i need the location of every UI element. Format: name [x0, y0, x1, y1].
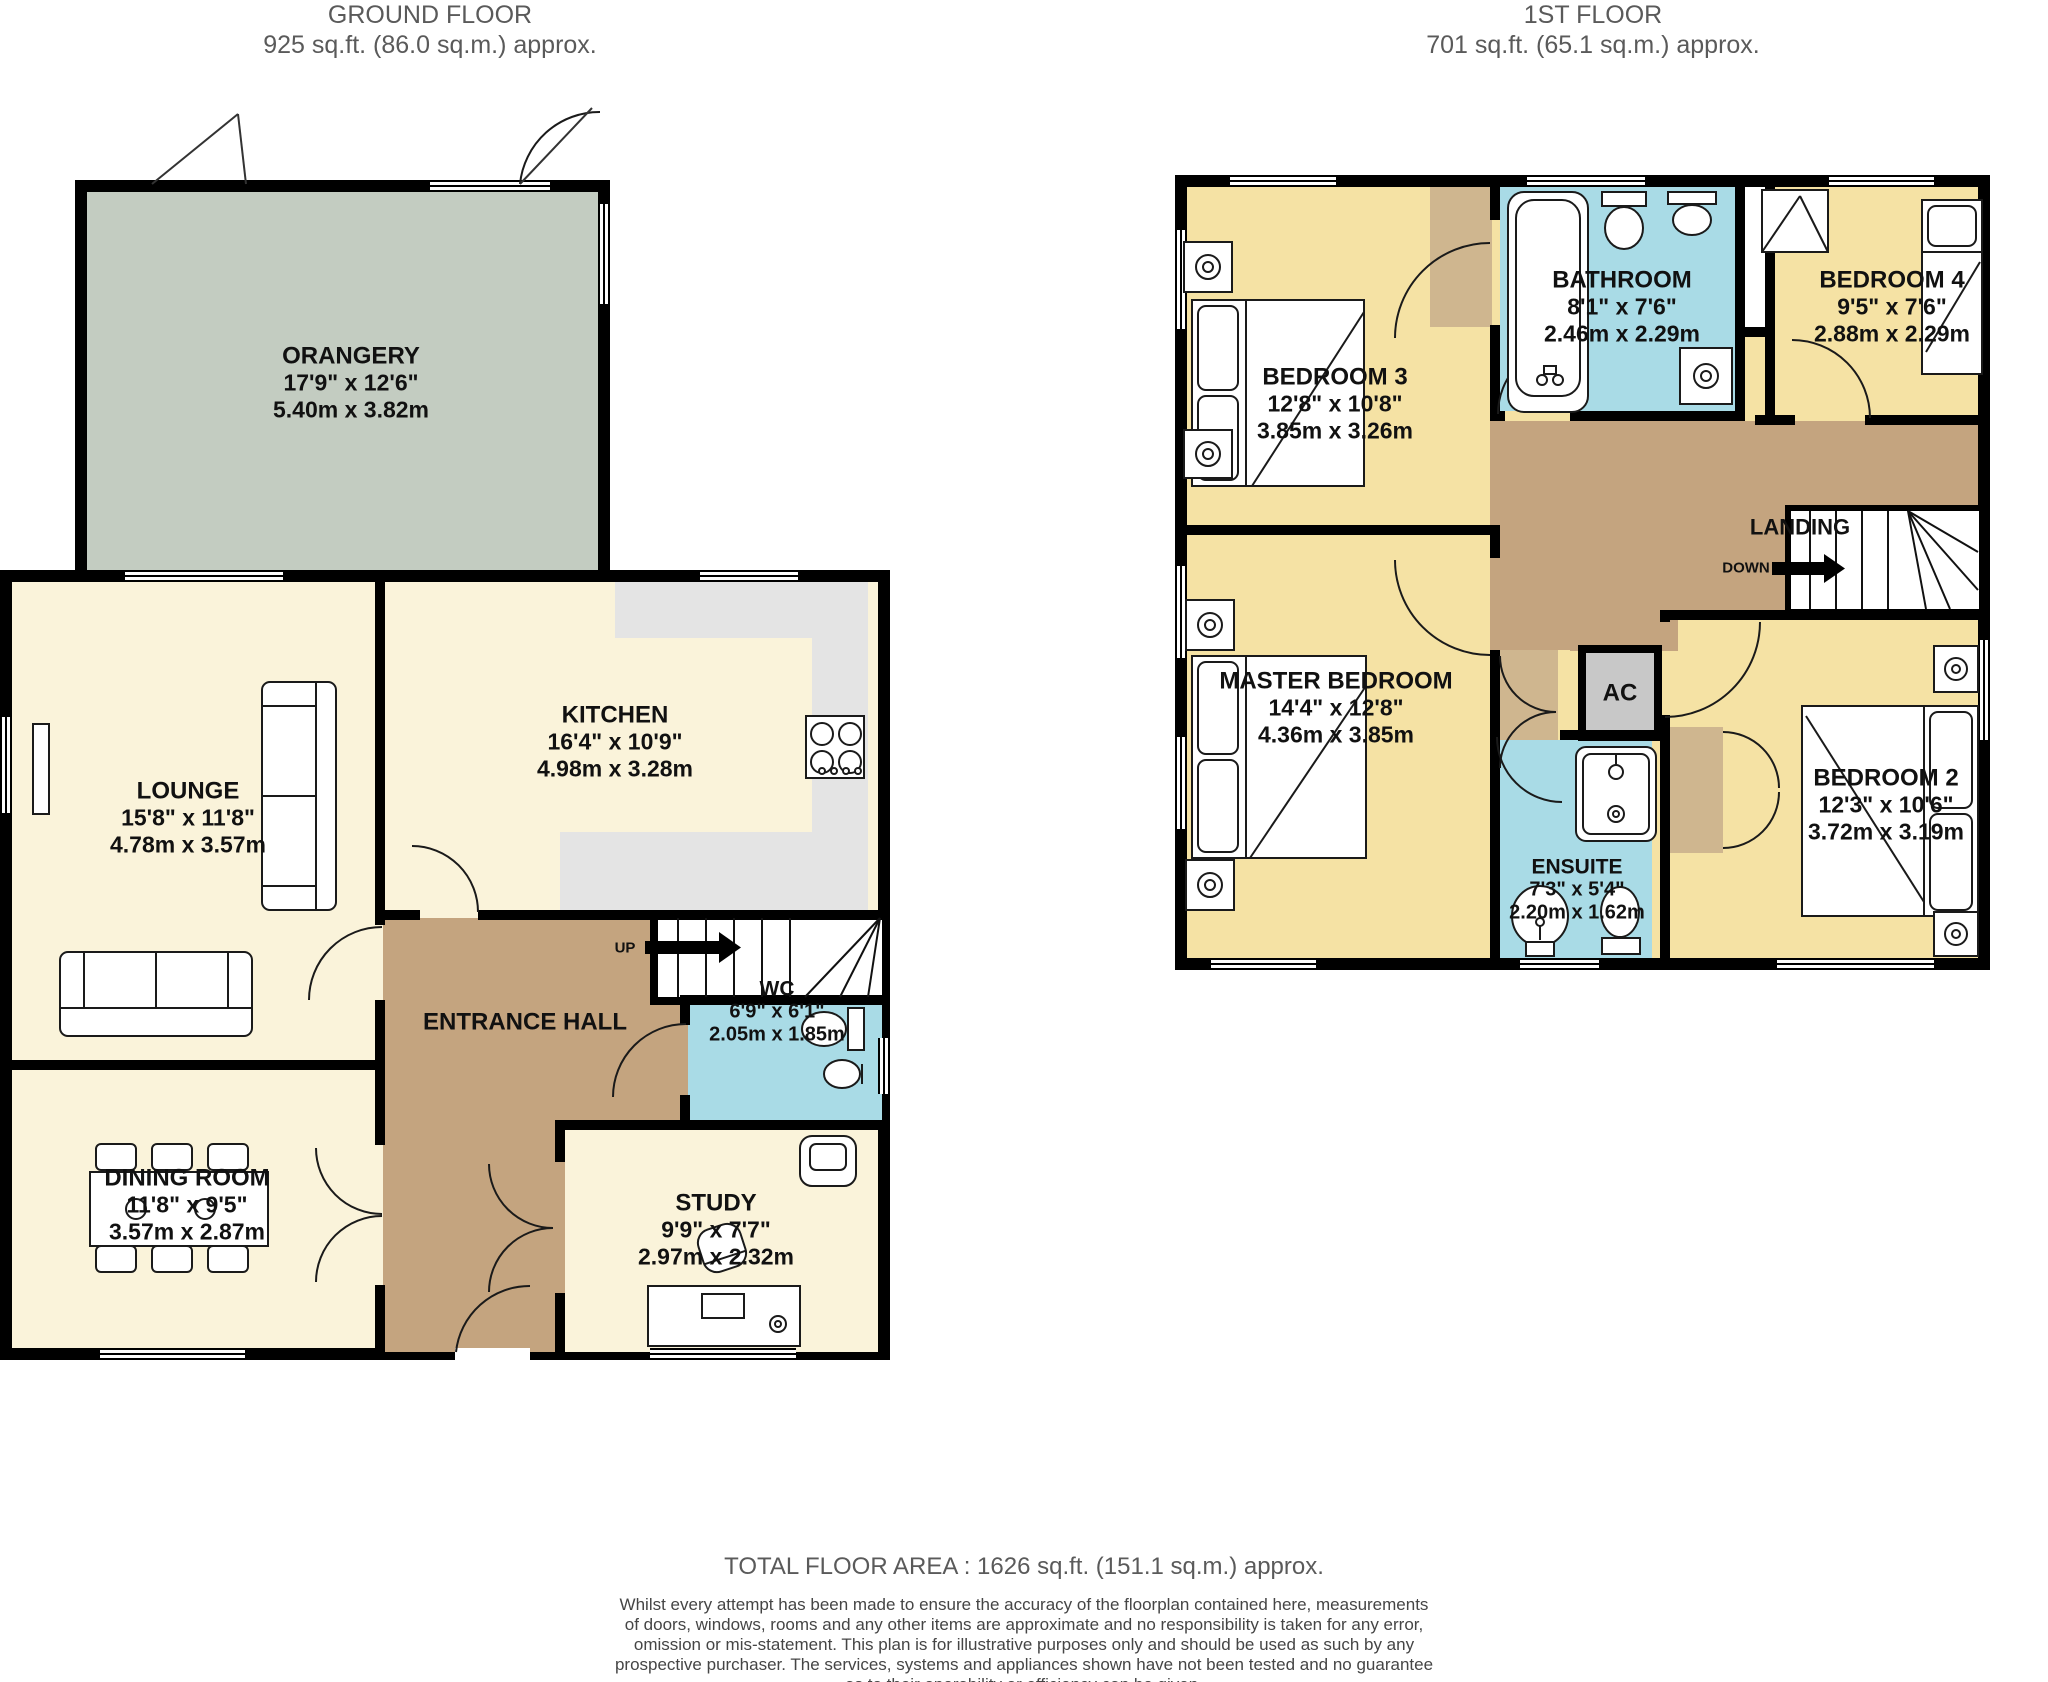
- wall: [1765, 175, 1775, 425]
- wall: [375, 1000, 385, 1145]
- room-label-lounge: LOUNGE 15'8" x 11'8" 4.78m x 3.57m: [110, 778, 266, 859]
- wall: [375, 1285, 385, 1360]
- window: [1175, 737, 1187, 829]
- wall: [1570, 411, 1745, 421]
- closet-bedroom2: [1668, 727, 1723, 853]
- wall: [1490, 175, 1500, 220]
- window: [1829, 175, 1934, 187]
- total-floor-area: TOTAL FLOOR AREA : 1626 sq.ft. (151.1 sq…: [614, 1553, 1434, 1581]
- wall: [0, 1060, 385, 1070]
- kitchen-counter-bottom: [560, 832, 812, 910]
- wall: [1735, 175, 1745, 421]
- room-label-landing: LANDING: [1750, 514, 1850, 541]
- window: [125, 570, 283, 582]
- room-label-kitchen: KITCHEN 16'4" x 10'9" 4.98m x 3.28m: [537, 702, 693, 783]
- window: [0, 717, 12, 813]
- wall: [1180, 525, 1500, 535]
- wall: [1660, 715, 1670, 970]
- window: [598, 204, 610, 304]
- room-ensuite: [1500, 740, 1652, 958]
- floorplan-canvas: GROUND FLOOR 925 sq.ft. (86.0 sq.m.) app…: [0, 0, 2048, 1682]
- cupboard: [1745, 187, 1765, 327]
- ground-floor-subtitle: 925 sq.ft. (86.0 sq.m.) approx.: [180, 30, 680, 60]
- stairs-up-label: UP: [615, 940, 636, 957]
- first-floor-subtitle: 701 sq.ft. (65.1 sq.m.) approx.: [1343, 30, 1843, 60]
- wall: [1490, 650, 1500, 970]
- room-label-bedroom3: BEDROOM 3 12'8" x 10'8" 3.85m x 3.26m: [1257, 364, 1413, 445]
- stairs-down-label: DOWN: [1722, 560, 1770, 577]
- window: [430, 180, 550, 192]
- window: [1527, 175, 1645, 187]
- ground-floor-title: GROUND FLOOR: [180, 0, 680, 30]
- window: [100, 1348, 245, 1360]
- room-label-master-bedroom: MASTER BEDROOM 14'4" x 12'8" 4.36m x 3.8…: [1219, 668, 1452, 749]
- room-label-bedroom4: BEDROOM 4 9'5" x 7'6" 2.88m x 2.29m: [1814, 267, 1970, 348]
- ground-floor-header: GROUND FLOOR 925 sq.ft. (86.0 sq.m.) app…: [180, 0, 680, 60]
- room-label-bathroom: BATHROOM 8'1" x 7'6" 2.46m x 2.29m: [1544, 267, 1700, 348]
- room-label-wc: WC 6'9" x 6'1" 2.05m x 1.85m: [709, 978, 845, 1047]
- wall: [375, 910, 420, 920]
- window: [1230, 175, 1336, 187]
- window: [1978, 640, 1990, 740]
- kitchen-counter-right: [812, 582, 868, 910]
- room-label-orangery: ORANGERY 17'9" x 12'6" 5.40m x 3.82m: [273, 343, 429, 424]
- footer: TOTAL FLOOR AREA : 1626 sq.ft. (151.1 sq…: [614, 1553, 1434, 1682]
- room-label-entrance-hall: ENTRANCE HALL: [423, 1009, 627, 1036]
- wall: [1490, 411, 1505, 421]
- window: [1520, 958, 1599, 970]
- window: [1175, 566, 1187, 658]
- first-floor-title: 1ST FLOOR: [1343, 0, 1843, 30]
- window: [878, 1038, 890, 1094]
- room-label-study: STUDY 9'9" x 7'7" 2.97m x 2.32m: [638, 1190, 794, 1271]
- window: [650, 1348, 796, 1360]
- room-label-ensuite: ENSUITE 7'3" x 5'4" 2.20m x 1.62m: [1509, 856, 1645, 925]
- disclaimer-text: Whilst every attempt has been made to en…: [614, 1595, 1434, 1682]
- wall: [555, 1120, 695, 1130]
- wall: [680, 1120, 890, 1130]
- room-label-bedroom2: BEDROOM 2 12'3" x 10'6" 3.72m x 3.19m: [1808, 765, 1964, 846]
- window: [1175, 230, 1187, 329]
- room-label-dining-room: DINING ROOM 11'8" x 9'5" 3.57m x 2.87m: [104, 1165, 269, 1246]
- window: [1777, 958, 1934, 970]
- wall: [1490, 325, 1500, 421]
- window: [700, 570, 798, 582]
- wall: [1490, 525, 1500, 558]
- wall: [1660, 610, 1670, 622]
- wall: [1865, 415, 1990, 425]
- wall: [375, 570, 385, 925]
- wall: [555, 1293, 565, 1360]
- wall: [478, 910, 890, 920]
- window: [1211, 958, 1316, 970]
- wall: [1660, 610, 1990, 620]
- orangery-roof-lines: [152, 108, 592, 184]
- first-floor-header: 1ST FLOOR 701 sq.ft. (65.1 sq.m.) approx…: [1343, 0, 1843, 60]
- wall: [1755, 415, 1795, 425]
- front-door-opening: [455, 1348, 530, 1360]
- room-label-ac: AC: [1603, 680, 1638, 707]
- wall: [1560, 730, 1660, 740]
- wall: [1745, 327, 1765, 337]
- closet-bedroom3: [1430, 187, 1492, 327]
